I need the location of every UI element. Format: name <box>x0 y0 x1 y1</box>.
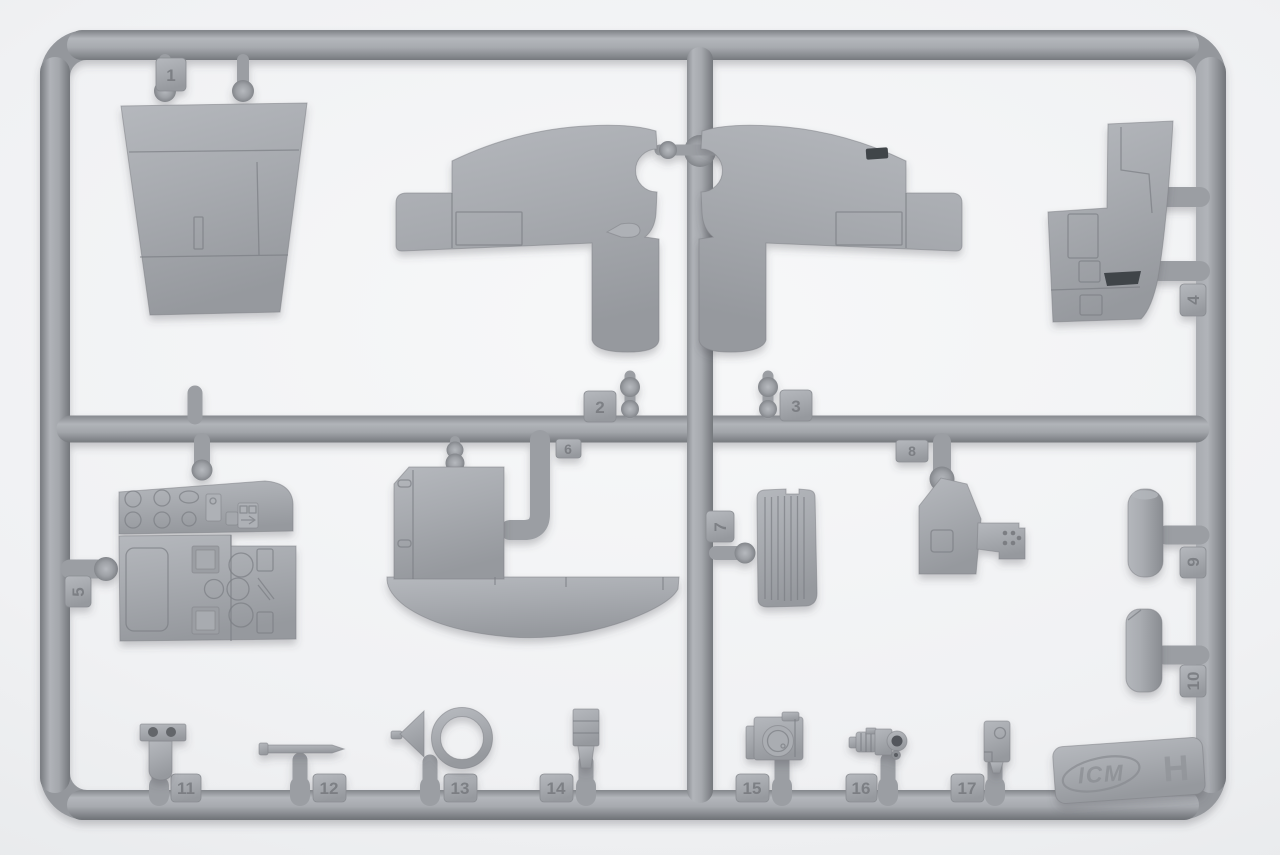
part-number-tab-10: 10 <box>1180 665 1206 697</box>
part-7-ribbed-panel <box>757 489 817 607</box>
part-number-tab-4: 4 <box>1180 284 1206 316</box>
part-number-label: 4 <box>1184 295 1203 305</box>
part-15-camera-fitting <box>746 712 803 760</box>
rivet-dot <box>1011 541 1016 546</box>
part-number-tab-9: 9 <box>1180 547 1206 578</box>
rivet-dot <box>1003 531 1008 536</box>
gate-ball <box>94 557 118 581</box>
part-number-label: 5 <box>69 587 88 596</box>
part-11-bracket <box>140 724 186 780</box>
part-number-label: 2 <box>595 398 604 417</box>
rivet-dot <box>1011 531 1016 536</box>
part-number-tab-13: 13 <box>444 774 477 802</box>
lens-hole-small <box>894 753 898 757</box>
wing-dark-slot <box>866 147 889 160</box>
part-number-tab-1: 1 <box>156 58 186 91</box>
part-4-fuselage-side-panel <box>1048 121 1173 322</box>
gate-ball <box>232 80 254 102</box>
part-number-label: 8 <box>908 443 916 459</box>
part-8-console <box>919 478 1025 574</box>
part-2-wing-half-left <box>396 125 659 352</box>
bracket-hole <box>148 727 158 737</box>
gate-ball <box>659 141 677 159</box>
gate-ball <box>758 377 778 397</box>
part-14-clip-bracket <box>573 709 599 768</box>
part-number-tab-16: 16 <box>846 774 877 802</box>
brand-logo-text: ICM <box>1077 759 1125 788</box>
part-number-tab-8: 8 <box>896 440 928 462</box>
part-number-label: 1 <box>166 66 175 85</box>
part-number-tab-7: 7 <box>706 511 734 542</box>
gate-ball <box>192 460 213 481</box>
bracket-hole <box>166 727 176 737</box>
part-number-label: 6 <box>564 441 572 457</box>
brand-logo-plate: ICM H <box>1052 737 1206 804</box>
gate-ball <box>735 543 756 564</box>
gate-part6-elbow <box>510 440 540 530</box>
part-number-label: 11 <box>177 779 195 798</box>
part-number-label: 17 <box>958 779 977 798</box>
part-number-tab-11: 11 <box>171 774 201 802</box>
part-number-tab-6: 6 <box>556 439 581 458</box>
sprue-parts: ICM H <box>119 103 1206 804</box>
part-12-gun-barrel <box>259 743 344 755</box>
part-number-tab-5: 5 <box>65 576 91 607</box>
gate-ball <box>620 377 640 397</box>
part-1-trapezoid-fuselage-panel <box>121 103 307 315</box>
part-16-gunsight-block <box>849 728 907 760</box>
rivet-dot <box>1017 536 1022 541</box>
part-number-label: 9 <box>1184 557 1203 566</box>
part-number-label: 13 <box>451 779 470 798</box>
sprue-frame-letter: H <box>1162 747 1191 790</box>
rivet-dot <box>1003 541 1008 546</box>
sprue-photo: 1 2 3 4 5 6 7 8 <box>0 0 1280 855</box>
part-5-instrument-panel <box>119 481 296 641</box>
part-13-ring-sight <box>391 708 493 769</box>
part-number-tab-12: 12 <box>313 774 346 802</box>
part-9-cylindrical-fairing <box>1128 489 1163 577</box>
sight-ring <box>436 712 488 764</box>
part-number-tab-2: 2 <box>584 391 616 422</box>
part-number-label: 12 <box>320 779 339 798</box>
lens-hole <box>892 736 903 747</box>
part-number-label: 7 <box>711 522 730 531</box>
part-number-label: 15 <box>743 779 762 798</box>
part-10-cylindrical-fairing <box>1126 609 1162 692</box>
part-number-tab-17: 17 <box>951 774 984 802</box>
part-number-tab-15: 15 <box>736 774 769 802</box>
part-number-tab-3: 3 <box>780 390 812 421</box>
part-3-wing-half-right <box>699 125 962 352</box>
gate-ball <box>759 400 777 418</box>
part-number-tab-14: 14 <box>540 774 573 802</box>
part-number-label: 16 <box>852 779 871 798</box>
part-number-label: 14 <box>547 779 566 798</box>
cylinder-top-face <box>1132 491 1158 500</box>
panel-dark-slot <box>1104 271 1141 286</box>
part-number-label: 3 <box>791 397 800 416</box>
part-number-label: 10 <box>1184 672 1203 691</box>
gate-ball <box>621 400 639 418</box>
